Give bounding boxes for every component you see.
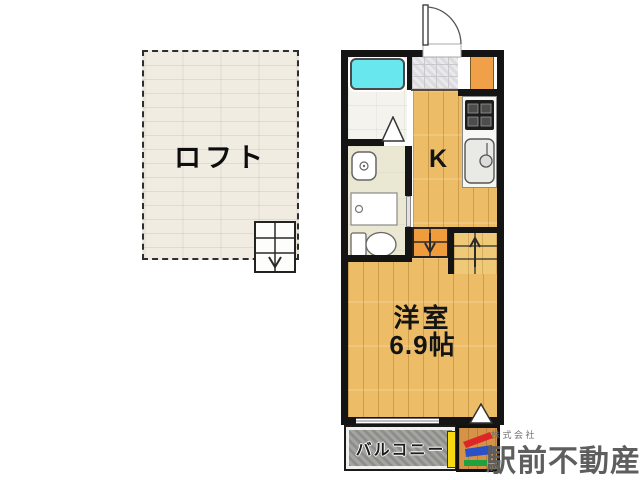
stove-icon [464,99,495,131]
western-room-label: 洋室 6.9帖 [348,305,497,360]
logo-yellow-bar [447,431,456,468]
wall-washroom-kitchen [405,146,412,196]
wall-washroom-kitchen [405,227,412,257]
floor-plan-canvas: ロフト [0,0,640,480]
entry-step-edge [411,89,458,91]
shoe-cabinet [470,52,494,90]
balcony-label: バルコニー [356,436,446,460]
room-name: 洋室 [348,305,497,332]
wall-washroom-room [348,255,412,262]
wall-bath-washroom [348,139,384,146]
wall-left [341,50,348,417]
corner-triangle-icon [469,403,493,424]
loft-stairs-icon [254,221,296,273]
window-sliding [356,418,439,424]
bathtub-icon [350,58,405,90]
toilet-icon [350,231,398,258]
bath-door-triangle-icon [381,116,405,142]
stairs-up-icon [454,233,497,274]
wall-entry-kitchen [458,89,497,96]
wall-right [497,50,504,425]
balcony-area: バルコニー [344,425,457,471]
step-down-icon [412,227,449,258]
washbasin-icon [350,149,378,187]
loft-label: ロフト [174,136,267,175]
entrance-door-icon [403,0,473,58]
washroom-door [406,196,411,227]
company-name: 駅前不動産 [486,436,640,480]
washing-machine-icon [350,191,398,227]
kitchen-sink-icon [463,137,496,185]
kitchen-label: K [413,145,463,174]
room-size: 6.9帖 [348,332,497,359]
